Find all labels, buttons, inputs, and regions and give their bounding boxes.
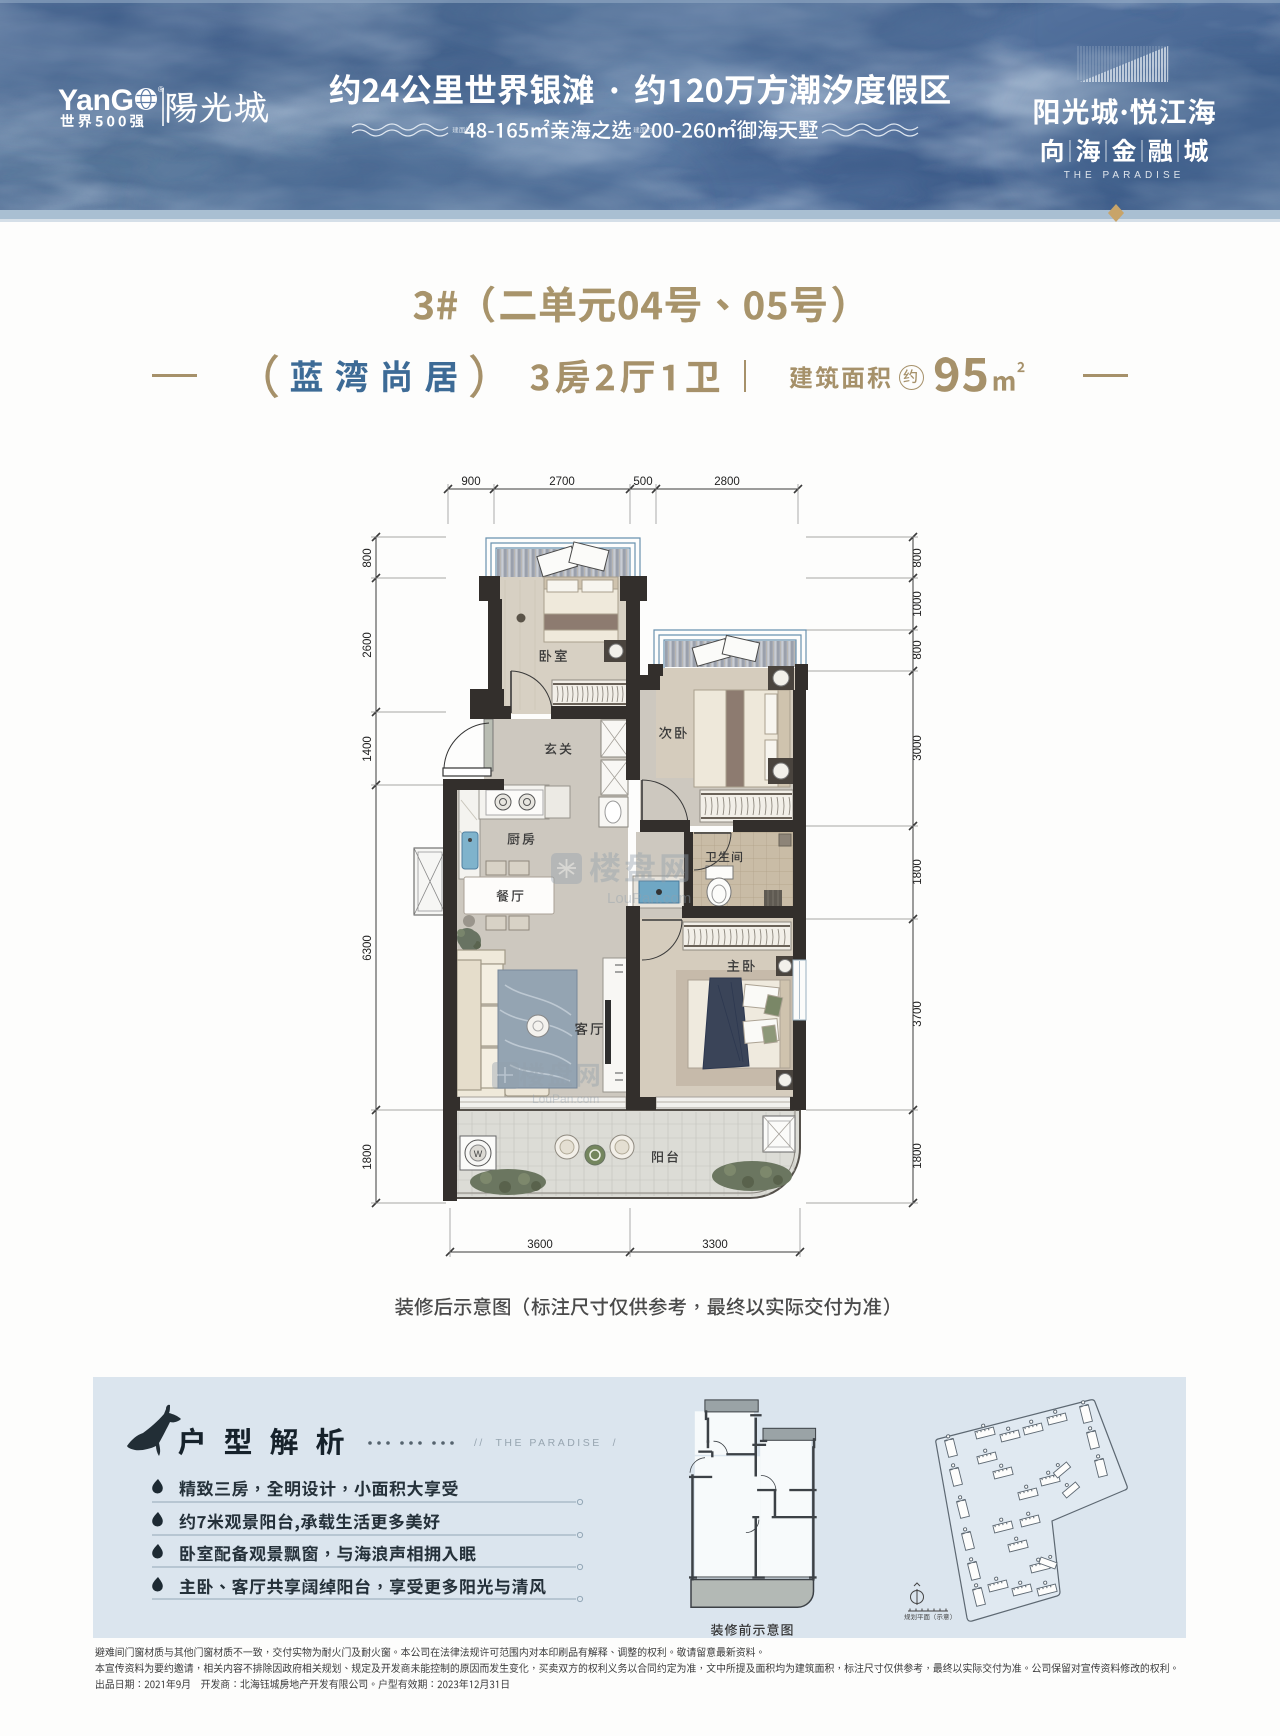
svg-text:YanG: YanG xyxy=(58,84,134,117)
svg-text:LouPan.com: LouPan.com xyxy=(607,890,691,907)
svg-text:THE PARADISE: THE PARADISE xyxy=(1064,170,1185,181)
svg-text:LouPan.com: LouPan.com xyxy=(532,1092,599,1106)
